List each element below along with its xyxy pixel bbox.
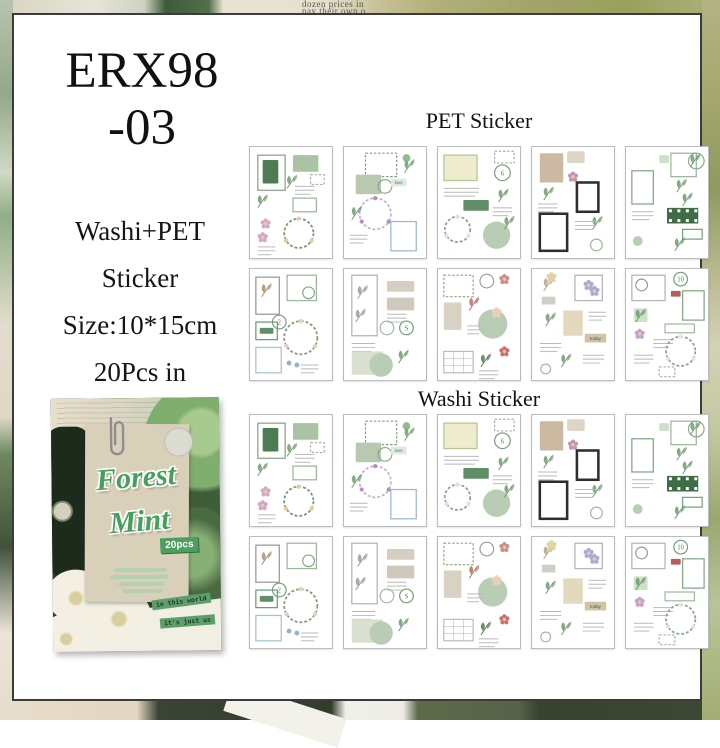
cover-title-line1: Forest — [78, 452, 193, 505]
product-code-line2: -03 — [36, 100, 248, 157]
sticker-sheet-washi-10: 10 — [625, 536, 709, 649]
sticker-sheet-pet-9: today — [531, 268, 615, 381]
info-line: Washi+PET — [30, 208, 250, 255]
green-seal-icon — [52, 501, 73, 522]
cover-title-script: Forest Mint — [78, 452, 197, 549]
product-info-text: Washi+PET Sticker Size:10*15cm 20Pcs in — [30, 208, 250, 396]
svg-text:10: 10 — [677, 277, 684, 284]
svg-text:6: 6 — [501, 170, 505, 177]
info-line: Sticker — [30, 255, 250, 302]
svg-text:2: 2 — [278, 588, 282, 595]
sticker-sheet-pet-3: 6 — [437, 146, 521, 259]
sticker-sheet-washi-4 — [531, 414, 615, 527]
svg-text:today: today — [590, 336, 602, 341]
sticker-sheet-washi-6: 2 — [249, 536, 333, 649]
sticker-sheet-pet-1 — [249, 146, 333, 259]
product-code-title: ERX98 -03 — [36, 43, 248, 157]
sticker-sheet-pet-2: love — [343, 146, 427, 259]
svg-text:love: love — [395, 180, 404, 185]
bottom-collage-strip — [0, 701, 720, 720]
product-cover: Forest Mint 20pcs in this world it's jus… — [51, 397, 222, 652]
sticker-sheet-washi-1 — [249, 414, 333, 527]
info-line: 20Pcs in — [30, 349, 250, 396]
svg-text:2: 2 — [278, 320, 282, 327]
sticker-sheet-washi-5 — [625, 414, 709, 527]
product-collage: dozen prices in pay their own o ERX98 -0… — [0, 0, 720, 720]
main-panel: ERX98 -03 Washi+PET Sticker Size:10*15cm… — [12, 13, 702, 701]
sticker-sheet-washi-2: love — [343, 414, 427, 527]
svg-text:6: 6 — [501, 438, 505, 445]
sticker-sheet-washi-7: S — [343, 536, 427, 649]
svg-text:10: 10 — [677, 545, 684, 552]
sticker-sheet-washi-9: today — [531, 536, 615, 649]
sticker-sheet-pet-7: S — [343, 268, 427, 381]
pet-sticker-heading: PET Sticker — [249, 108, 709, 134]
sticker-sheet-washi-3: 6 — [437, 414, 521, 527]
svg-text:love: love — [395, 448, 404, 453]
sticker-sheet-pet-5 — [625, 146, 709, 259]
sticker-sheet-washi-8 — [437, 536, 521, 649]
sticker-sheet-pet-10: 10 — [625, 268, 709, 381]
sticker-sheet-pet-8 — [437, 268, 521, 381]
count-badge: 20pcs — [160, 537, 199, 554]
sticker-sheet-pet-4 — [531, 146, 615, 259]
info-line: Size:10*15cm — [30, 302, 250, 349]
paperclip-icon — [105, 416, 127, 462]
svg-text:S: S — [405, 593, 409, 600]
svg-text:S: S — [405, 325, 409, 332]
sticker-sheet-pet-6: 2 — [249, 268, 333, 381]
product-code-line1: ERX98 — [36, 43, 248, 100]
svg-text:today: today — [590, 604, 602, 609]
washi-sticker-heading: Washi Sticker — [249, 386, 709, 412]
